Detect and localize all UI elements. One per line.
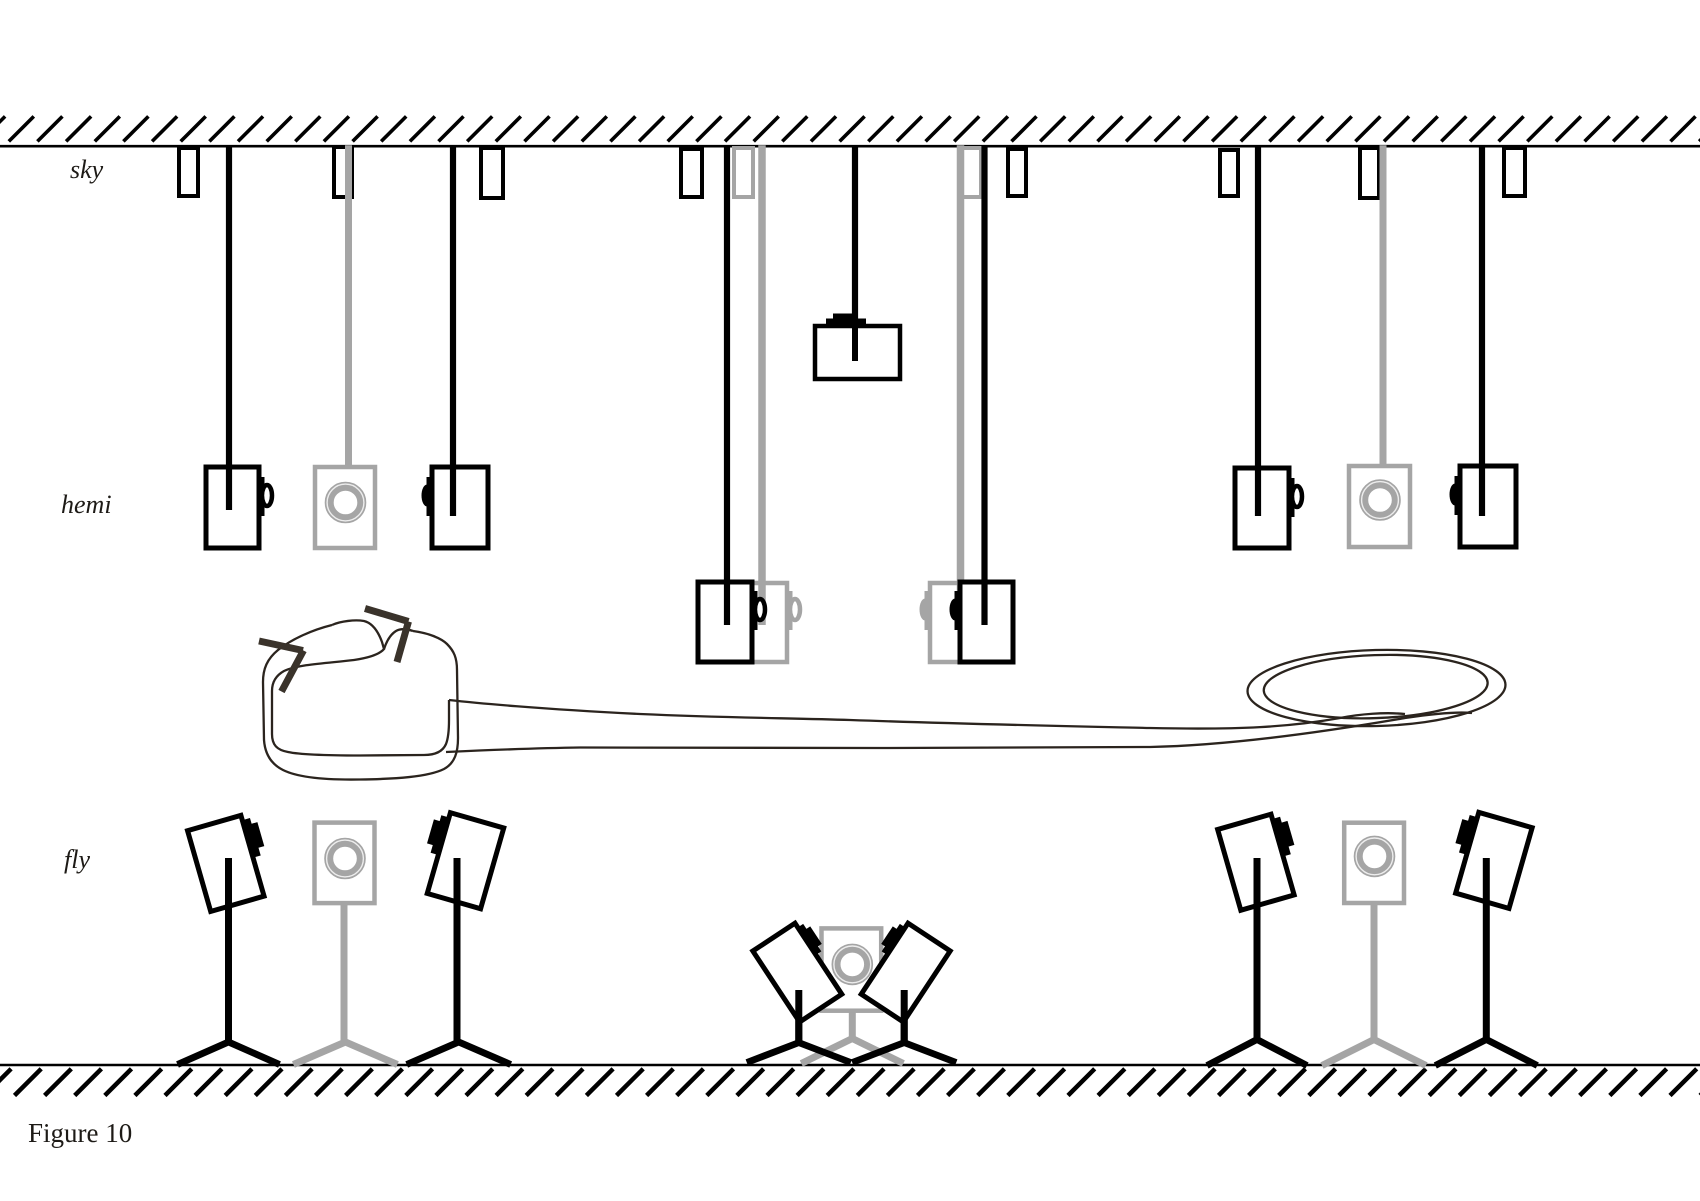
svg-text:sky: sky (70, 155, 104, 184)
svg-text:hemi: hemi (61, 490, 112, 519)
svg-text:fly: fly (64, 845, 90, 874)
svg-text:Figure 10: Figure 10 (28, 1118, 132, 1148)
